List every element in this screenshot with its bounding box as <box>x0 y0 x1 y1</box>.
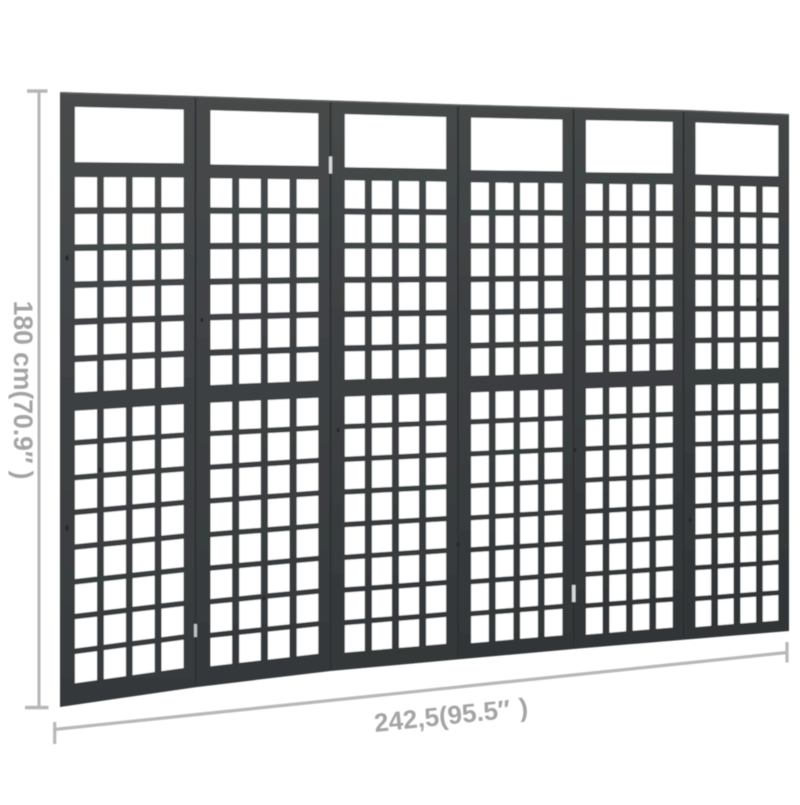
svg-text:180 cm(70.9″): 180 cm(70.9″) <box>8 301 38 480</box>
